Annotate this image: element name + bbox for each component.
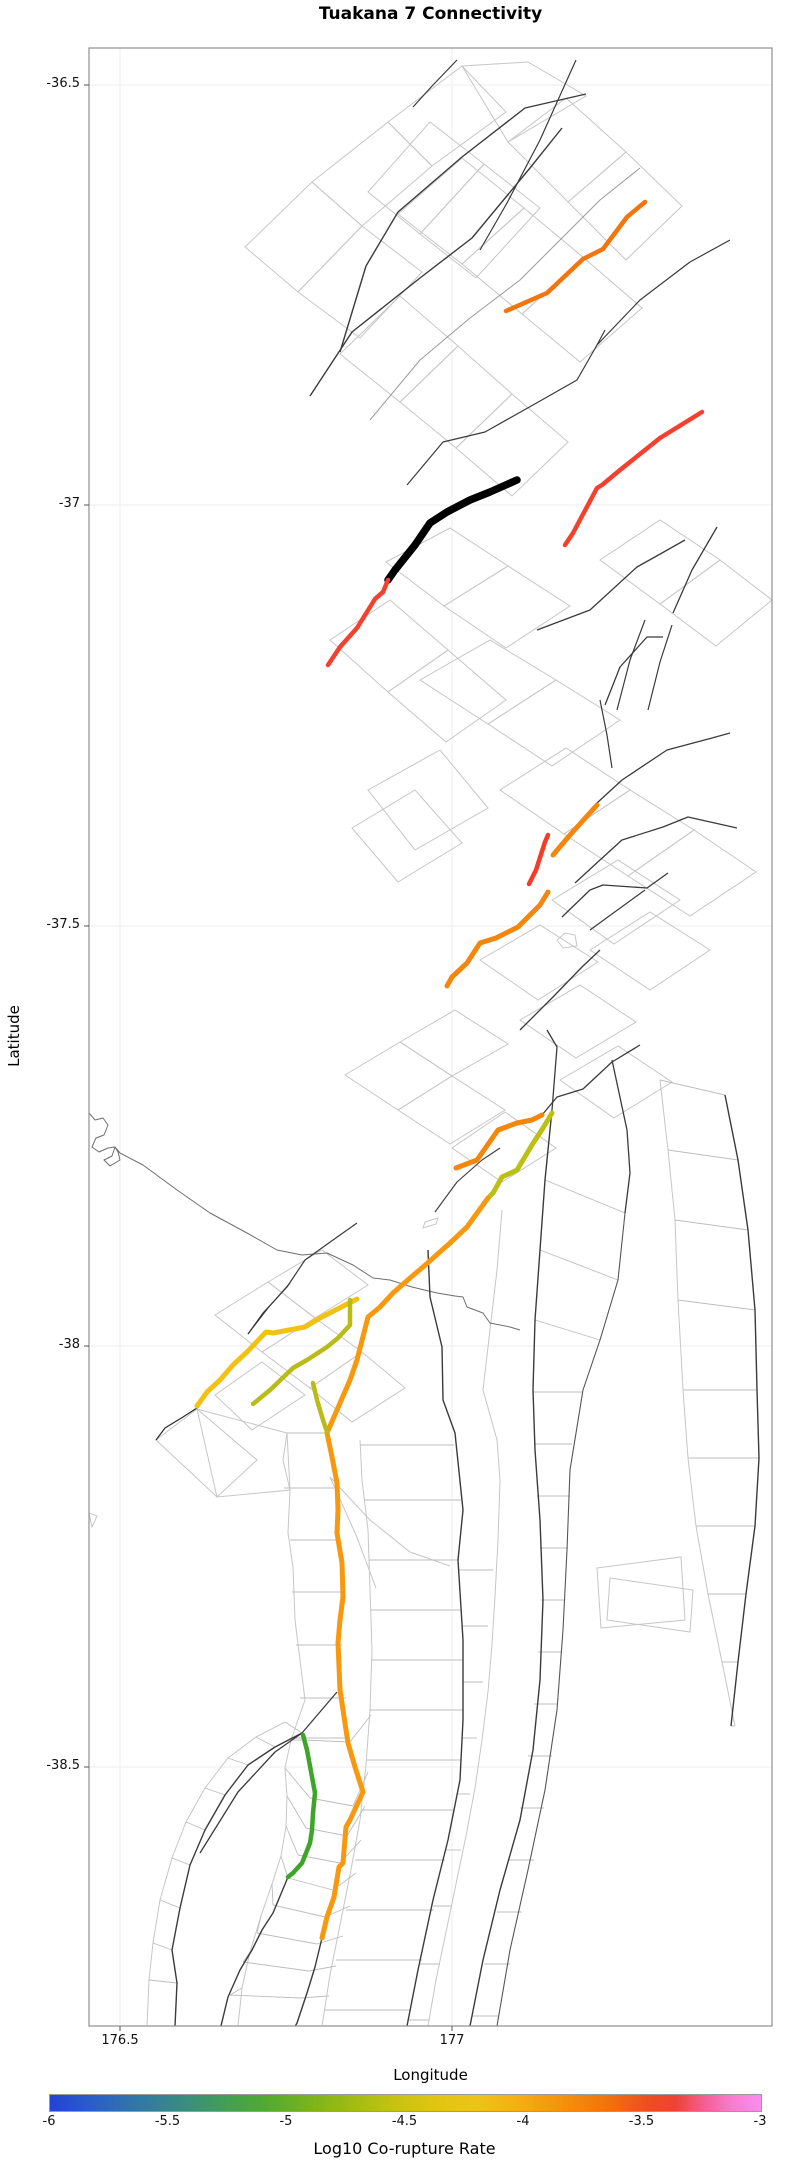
map-content (89, 48, 772, 2030)
mesh-polygon (607, 1578, 693, 1632)
rupture-segment-node-olive (488, 1113, 552, 1198)
mesh-polygon (568, 152, 682, 260)
rupture-segment-main-orange-trunk (322, 1198, 488, 1938)
colorbar-tick-label: -5 (279, 2114, 292, 2129)
fault-line (600, 700, 612, 768)
mesh-polygon (628, 830, 756, 916)
colorbar-gradient (49, 2094, 762, 2112)
fault-line (340, 94, 586, 352)
rupture-segment-southwest-red (328, 580, 388, 665)
fault-line (605, 637, 663, 705)
y-tick-label: -38.5 (0, 1758, 80, 1773)
mesh-line (660, 1080, 683, 1390)
ladder-rung (186, 1822, 205, 1830)
ladder-rung (535, 1320, 600, 1340)
mesh-polygon (398, 158, 524, 264)
rupture-segment-north-orange (506, 202, 645, 311)
mesh-polygon (564, 790, 694, 876)
fault-line (648, 625, 672, 710)
x-axis-label: Longitude (89, 2066, 772, 2084)
mesh-line (283, 1433, 305, 1740)
mesh-polygon (488, 680, 620, 766)
ladder-rung (205, 1788, 225, 1795)
mesh-polygon (386, 528, 508, 606)
rupture-segment-olive-connector (313, 1383, 327, 1432)
fault-line (407, 330, 605, 485)
rupture-segment-mid-red (529, 835, 548, 884)
ladder-rung (285, 1768, 310, 1798)
rupture-segment-northeast-red (565, 412, 702, 545)
ladder-rung (288, 1878, 333, 1890)
fault-line (725, 1095, 759, 1726)
y-tick-label: -36.5 (0, 76, 80, 91)
ladder-rung (281, 1856, 288, 1878)
fault-line (673, 527, 717, 613)
fault-line (220, 1877, 288, 2030)
y-tick-label: -37.5 (0, 917, 80, 932)
mesh-polygon (312, 122, 432, 226)
fault-line (172, 1733, 302, 2026)
mesh-polygon (522, 258, 642, 362)
colorbar-tick-label: -4 (517, 2114, 530, 2129)
fault-line (310, 128, 562, 396)
ladder-rung (272, 1884, 273, 1905)
mesh-polygon (400, 1010, 508, 1076)
rupture-segment-mid-orange-upper (553, 805, 597, 855)
fault-line (200, 1692, 337, 1853)
ladder-rung (172, 1858, 190, 1865)
colorbar-tick-label: -6 (43, 2114, 56, 2129)
mesh-polygon (352, 790, 462, 882)
fault-line (470, 1110, 552, 2026)
fault-line (597, 733, 730, 803)
ladder-rung (287, 1796, 306, 1828)
ladder-rung (540, 1250, 618, 1280)
fault-line (537, 540, 685, 630)
map-canvas (0, 0, 800, 2174)
colorbar-tick-label: -4.5 (392, 2114, 417, 2129)
connectivity-figure: Tuakana 7 Connectivity Longitude Latitud… (0, 0, 800, 2174)
y-tick-label: -37 (0, 496, 80, 511)
mesh-polygon (345, 1042, 452, 1110)
mesh-polygon (423, 1218, 438, 1228)
ladder-rung (153, 1943, 172, 1950)
mesh-polygon (552, 860, 680, 944)
ladder-rung (309, 1966, 336, 1971)
ladder-rung (243, 1962, 309, 1971)
ladder-rung (678, 1300, 755, 1310)
fault-line (497, 1213, 625, 2026)
mesh-polygon (330, 600, 448, 692)
mesh-polygon (462, 208, 584, 314)
mesh-polygon (298, 226, 422, 338)
ladder-rung (545, 1180, 625, 1213)
mesh-polygon (368, 122, 484, 234)
fault-line (248, 1223, 357, 1334)
mesh-polygon (590, 912, 710, 990)
mesh-polygon (368, 750, 488, 850)
ladder-rung (675, 1220, 748, 1230)
mesh-polygon (215, 1282, 315, 1352)
ladder-rung (273, 1905, 325, 1917)
ladder-rung (228, 1758, 248, 1765)
y-tick-label: -38 (0, 1337, 80, 1352)
mesh-polygon (452, 1112, 556, 1182)
fault-line (612, 1060, 630, 1213)
mesh-polygon (597, 1557, 685, 1628)
x-tick-label: 177 (440, 2033, 465, 2048)
mesh-line (330, 1477, 450, 1566)
colorbar-tick-label: -5.5 (155, 2114, 180, 2129)
ladder-rung (257, 1933, 317, 1944)
ladder-rung (256, 1737, 275, 1747)
mesh-polygon (444, 566, 570, 648)
mesh-polygon (388, 66, 506, 166)
ladder-rung (257, 1916, 261, 1933)
mesh-polygon (557, 933, 577, 948)
mesh-polygon (340, 296, 458, 402)
colorbar-tick-label: -3 (754, 2114, 767, 2129)
fault-line (575, 817, 737, 883)
ladder-rung (660, 1080, 725, 1095)
x-tick-label: 176.5 (101, 2033, 138, 2048)
mesh-polygon (400, 346, 512, 448)
fault-line (413, 60, 457, 107)
mesh-polygon (600, 520, 720, 604)
mesh-polygon (520, 985, 636, 1058)
mesh-polygon (388, 650, 506, 742)
mesh-polygon (420, 164, 540, 278)
mesh-polygon (508, 98, 626, 202)
mesh-polygon (268, 1250, 368, 1318)
fault-line (435, 1148, 500, 1212)
rupture-segment-olive-branch (253, 1300, 350, 1404)
mesh-polygon (89, 1513, 97, 1527)
ladder-rung (160, 1900, 180, 1908)
y-axis-label: Latitude (5, 996, 23, 1076)
ladder-rung (286, 1826, 298, 1855)
ladder-rung (668, 1150, 738, 1160)
mesh-line (147, 1722, 285, 2026)
ladder-rung (149, 1980, 177, 1983)
mesh-polygon (560, 1046, 672, 1118)
mesh-line (683, 1390, 735, 1726)
colorbar-tick-label: -3.5 (629, 2114, 654, 2129)
rupture-segment-west-yellow-branch (197, 1299, 357, 1406)
fault-line (590, 890, 645, 930)
mesh-polygon (420, 640, 556, 724)
colorbar-label: Log10 Co-rupture Rate (49, 2139, 760, 2158)
mesh-polygon (245, 182, 362, 292)
ladder-rung (304, 1740, 350, 1742)
fault-line (293, 1938, 322, 2030)
plot-border (89, 48, 772, 2026)
